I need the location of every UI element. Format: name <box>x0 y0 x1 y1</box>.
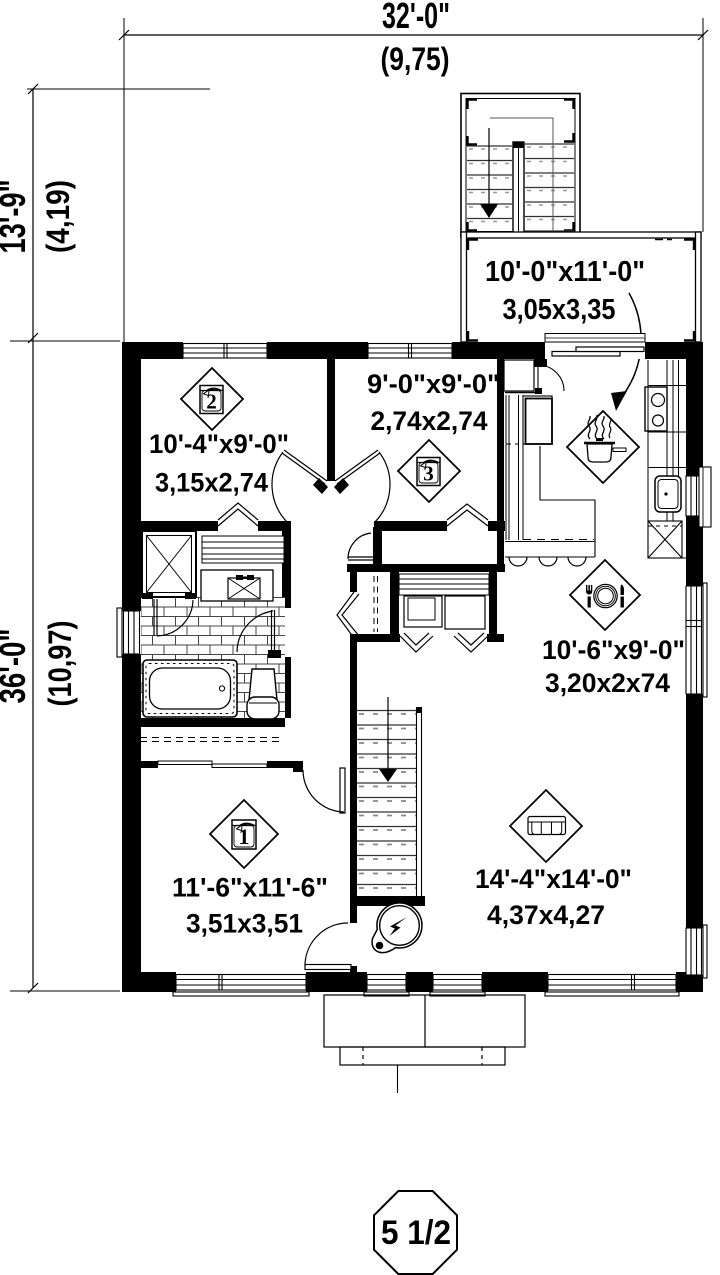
svg-text:36'-0": 36'-0" <box>0 629 33 704</box>
svg-text:11'-6"x11'-6": 11'-6"x11'-6" <box>172 873 328 903</box>
svg-text:1: 1 <box>239 824 250 849</box>
svg-text:3,05x3,35: 3,05x3,35 <box>503 294 616 326</box>
svg-text:13'-9": 13'-9" <box>0 180 33 254</box>
svg-text:2,74x2,74: 2,74x2,74 <box>371 406 488 436</box>
svg-text:9'-0"x9'-0": 9'-0"x9'-0" <box>367 369 500 399</box>
svg-text:3,51x3,51: 3,51x3,51 <box>186 909 303 939</box>
svg-text:10'-4"x9'-0": 10'-4"x9'-0" <box>149 429 289 459</box>
svg-text:3,20x2x74: 3,20x2x74 <box>545 668 670 698</box>
svg-text:5 1/2: 5 1/2 <box>381 1214 451 1252</box>
svg-text:14'-4"x14'-0": 14'-4"x14'-0" <box>475 864 632 894</box>
svg-text:(4,19): (4,19) <box>40 180 76 253</box>
svg-text:10'-0"x11'-0": 10'-0"x11'-0" <box>485 256 645 288</box>
svg-text:2: 2 <box>206 390 217 414</box>
svg-text:32'-0": 32'-0" <box>382 0 450 36</box>
svg-text:4,37x4,27: 4,37x4,27 <box>487 900 605 930</box>
svg-text:(10,97): (10,97) <box>42 621 78 707</box>
svg-text:3,15x2,74: 3,15x2,74 <box>155 468 268 498</box>
svg-text:(9,75): (9,75) <box>381 41 450 77</box>
svg-text:10'-6"x9'-0": 10'-6"x9'-0" <box>542 635 685 665</box>
svg-text:3: 3 <box>423 462 434 486</box>
